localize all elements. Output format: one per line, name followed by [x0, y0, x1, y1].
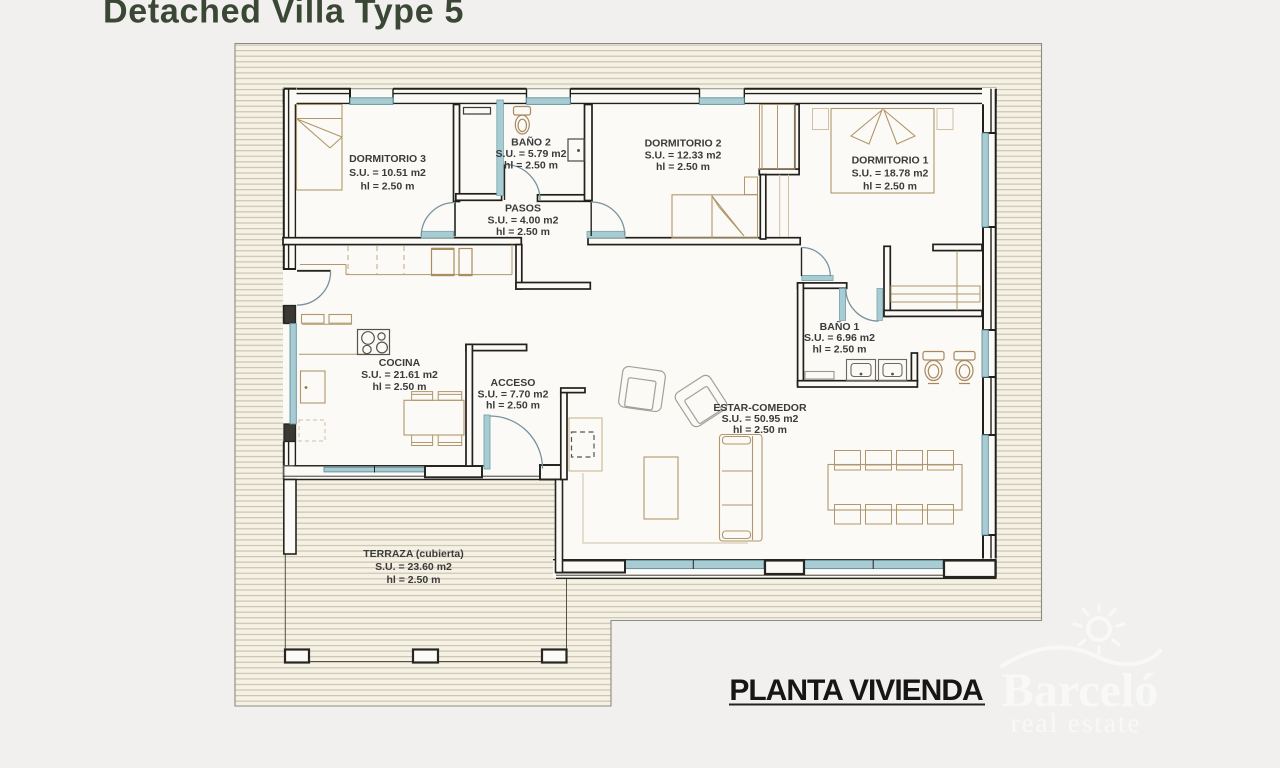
svg-text:ACCESO: ACCESO [491, 377, 536, 389]
svg-text:Detached Villa Type 5: Detached Villa Type 5 [103, 0, 464, 31]
svg-text:DORMITORIO 2: DORMITORIO 2 [645, 138, 722, 150]
svg-text:S.U. = 5.79 m2: S.U. = 5.79 m2 [496, 148, 567, 160]
svg-text:hl = 2.50 m: hl = 2.50 m [496, 226, 550, 238]
svg-text:S.U. = 10.51 m2: S.U. = 10.51 m2 [349, 167, 426, 179]
svg-text:S.U. = 6.96 m2: S.U. = 6.96 m2 [804, 332, 875, 344]
svg-text:real estate: real estate [1011, 708, 1142, 738]
svg-text:hl = 2.50 m: hl = 2.50 m [813, 344, 867, 356]
svg-text:PASOS: PASOS [505, 202, 541, 214]
svg-text:ESTAR-COMEDOR: ESTAR-COMEDOR [713, 402, 807, 414]
svg-text:BAÑO 2: BAÑO 2 [511, 136, 551, 149]
svg-text:COCINA: COCINA [379, 357, 421, 369]
svg-text:hl = 2.50 m: hl = 2.50 m [656, 161, 710, 173]
svg-text:hl = 2.50 m: hl = 2.50 m [373, 381, 427, 393]
svg-text:S.U. = 4.00 m2: S.U. = 4.00 m2 [488, 214, 559, 226]
svg-text:hl = 2.50 m: hl = 2.50 m [486, 399, 540, 411]
svg-text:S.U. = 21.61 m2: S.U. = 21.61 m2 [361, 369, 438, 381]
svg-text:hl = 2.50 m: hl = 2.50 m [504, 160, 558, 172]
svg-text:PLANTA VIVIENDA: PLANTA VIVIENDA [729, 674, 983, 707]
svg-text:S.U. = 23.60 m2: S.U. = 23.60 m2 [375, 561, 452, 573]
svg-text:S.U. = 12.33 m2: S.U. = 12.33 m2 [645, 150, 722, 162]
svg-text:hl = 2.50 m: hl = 2.50 m [361, 181, 415, 193]
svg-text:DORMITORIO 3: DORMITORIO 3 [349, 153, 426, 165]
svg-text:hl = 2.50 m: hl = 2.50 m [733, 424, 787, 436]
svg-text:DORMITORIO 1: DORMITORIO 1 [852, 155, 929, 167]
svg-text:hl = 2.50 m: hl = 2.50 m [387, 574, 441, 586]
svg-text:TERRAZA (cubierta): TERRAZA (cubierta) [363, 548, 464, 560]
svg-text:S.U. = 18.78 m2: S.U. = 18.78 m2 [852, 168, 929, 180]
svg-text:hl = 2.50 m: hl = 2.50 m [863, 181, 917, 193]
